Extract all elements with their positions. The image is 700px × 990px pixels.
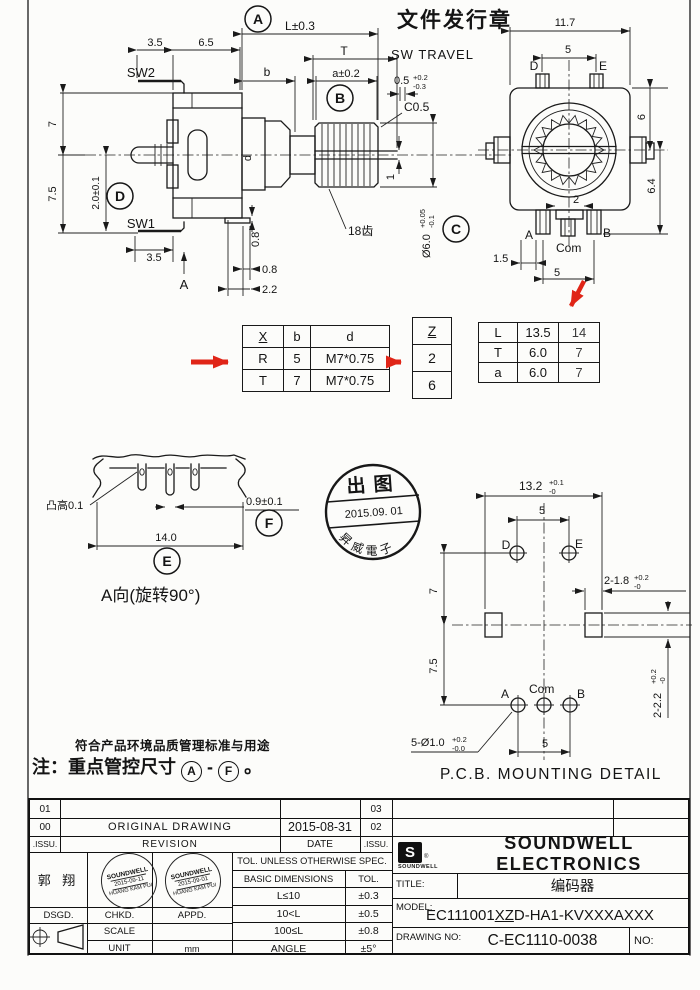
- dim-T: T: [340, 44, 348, 58]
- dim-09: 0.9±0.1: [246, 496, 283, 508]
- dim-08-horiz: 0.8: [262, 264, 277, 276]
- spec-cell: T: [243, 370, 284, 392]
- dim-b: b: [264, 65, 271, 79]
- title-block: 01 03 00 ORIGINAL DRAWING 2015-08-31 02 …: [28, 798, 690, 955]
- no-label: NO:: [634, 931, 684, 951]
- rev-date: 2015-08-31: [280, 818, 360, 836]
- terminal-d-label: D: [530, 59, 539, 73]
- terminal-com-label: Com: [556, 241, 581, 255]
- callout-e: E: [162, 553, 171, 569]
- pcb-slot-w-sub: -0: [634, 582, 641, 591]
- compliance-note: 符合产品环境品质管理标准与用途: [75, 735, 270, 754]
- bump-height-label: 凸高0.1: [46, 498, 83, 512]
- scale-label: SCALE: [87, 923, 152, 940]
- tol-row-dim: 100≤L: [232, 922, 345, 940]
- teeth-label: 18齿: [348, 224, 373, 238]
- pcb-dim-132: 13.2: [519, 479, 543, 493]
- pcb-hole-e-label: E: [575, 537, 583, 551]
- rev-desc: ORIGINAL DRAWING: [60, 818, 280, 836]
- stamp-title: 出图: [346, 471, 401, 498]
- drawing-sheet: 1 d L±0.3 T a±0.2 b 0.5 +0.2 -0.3 C0.5 S…: [0, 0, 700, 990]
- pcb-dim-132-sup: +0.1: [549, 478, 564, 487]
- rev-header-date: DATE: [280, 836, 360, 852]
- model-post: D-HA1-KVXXXAXXX: [514, 907, 654, 924]
- drawing-no-label: DRAWING NO:: [396, 930, 466, 944]
- role-appd: APPD.: [152, 907, 232, 923]
- dim-shaft-dia-sub: -0.1: [427, 215, 436, 228]
- sw-travel-label: SW TRAVEL: [391, 47, 474, 62]
- rev-issu-03: 03: [360, 800, 392, 818]
- dim-35-bot: 3.5: [146, 252, 161, 264]
- dim-5-top-front: 5: [565, 44, 571, 56]
- stamp-company: 昇威電子: [336, 530, 397, 558]
- callout-letters: A B C D E F: [115, 11, 461, 569]
- lta-cell: 7: [559, 363, 600, 383]
- terminal-a-label: A: [525, 228, 533, 242]
- pcb-dim-5-bot: 5: [542, 738, 548, 750]
- dim-75: 7.5: [47, 186, 59, 201]
- knurl-lines: [322, 124, 370, 186]
- dim-65: 6.5: [198, 37, 213, 49]
- sw2-label: SW2: [127, 65, 155, 80]
- title-label: TITLE:: [396, 876, 452, 892]
- pcb-hole-d-label: D: [502, 538, 511, 552]
- callout-c: C: [451, 221, 461, 237]
- dim-shaft-dia: Ø6.0: [421, 234, 433, 258]
- role-dsgd: DSGD.: [30, 907, 87, 923]
- lta-cell: 7: [559, 343, 600, 363]
- z-table: Z 2 6: [412, 317, 452, 399]
- model-value: EC111001XZD-HA1-KVXXXAXXX: [392, 904, 688, 926]
- logo-glyph: S: [398, 842, 422, 863]
- tol-col-tol: TOL.: [345, 870, 392, 887]
- tol-row-val: ±0.8: [345, 922, 392, 940]
- registered-mark: ®: [424, 854, 428, 860]
- terminal-b-label: B: [603, 226, 611, 240]
- callout-b: B: [335, 90, 345, 106]
- tol-header: TOL. UNLESS OTHERWISE SPEC.: [232, 852, 392, 870]
- drawing-no-value: C-EC1110-0038: [460, 929, 625, 953]
- tol-row-val: ±0.5: [345, 905, 392, 922]
- spec-cell: 7: [284, 370, 311, 392]
- lta-cell: 14: [559, 323, 600, 343]
- dim-2: 2: [573, 194, 579, 206]
- tol-row-dim: ANGLE: [232, 940, 345, 957]
- dim-64: 6.4: [646, 178, 658, 193]
- note-suffix: 。: [244, 757, 262, 777]
- dim-14: 14.0: [155, 532, 176, 544]
- lta-cell: T: [479, 343, 518, 363]
- pcb-dim-5-top: 5: [539, 505, 545, 517]
- logo-text: SOUNDWELL: [398, 864, 438, 870]
- a-direction-view: 凸高0.1 0.9±0.1 14.0 A向(旋转90°): [46, 455, 299, 605]
- dim-117: 11.7: [555, 17, 576, 29]
- rev-issu-00: 00: [30, 818, 60, 836]
- tol-row-dim: L≤10: [232, 887, 345, 905]
- dim-22: 2.2: [262, 284, 277, 296]
- spec-cell: M7*0.75: [311, 348, 390, 370]
- dim-slot-width: 1: [385, 174, 397, 180]
- front-view: D E A Com B 11.7 5 6 6.4 2 1.5 5: [478, 17, 668, 284]
- key-dimensions-note: 注：重点管控尺寸 A - F 。: [32, 753, 262, 782]
- callout-d: D: [115, 188, 125, 204]
- lta-table: L 13.5 14 T 6.0 7 a 6.0 7: [478, 322, 600, 383]
- callout-a: A: [253, 11, 263, 27]
- lta-cell: L: [479, 323, 518, 343]
- rev-issu-02: 02: [360, 818, 392, 836]
- rev-header-issu: .ISSU.: [30, 836, 60, 852]
- terminal-e-label: E: [599, 59, 607, 73]
- role-chkd: CHKD.: [87, 907, 152, 923]
- dim-shaft-dia-sup: +0.05: [418, 209, 427, 228]
- a-view-caption: A向(旋转90°): [101, 586, 200, 605]
- designer-name: 郭 翔: [30, 852, 87, 907]
- title-value: 编码器: [457, 873, 688, 898]
- pcb-hole-a-label: A: [501, 687, 509, 701]
- rev-header-revision: REVISION: [60, 836, 280, 852]
- tol-row-val: ±0.3: [345, 887, 392, 905]
- pcb-holes-dim: 5-Ø1.0: [411, 737, 445, 749]
- rev-header-issu2: .ISSU.: [360, 836, 392, 852]
- tol-row-val: ±5°: [345, 940, 392, 957]
- z-header: Z: [413, 318, 452, 345]
- dim-7: 7: [47, 121, 59, 127]
- approval-stamp-appd: SOUNDWELL 2015-09-01 HUANG KAM PUI: [160, 848, 226, 914]
- pcb-holes-dim-sup: +0.2: [452, 735, 467, 744]
- company-name: SOUNDWELL ELECTRONICS: [450, 838, 688, 870]
- pcb-slot-w-sup: +0.2: [634, 573, 649, 582]
- spec-cell: R: [243, 348, 284, 370]
- rev-issu-01: 01: [30, 800, 60, 818]
- dim-a: a±0.2: [332, 68, 359, 80]
- pcb-caption: P.C.B. MOUNTING DETAIL: [440, 766, 662, 783]
- pcb-slot-h-sub: -0: [658, 677, 667, 684]
- pcb-mounting-detail: D E A Com B 5 13.2 +0.1 -0 7 7.5 2-1.8 +…: [411, 478, 692, 783]
- side-view: 1 d L±0.3 T a±0.2 b 0.5 +0.2 -0.3 C0.5 S…: [47, 8, 512, 296]
- pcb-slot-h-sup: +0.2: [649, 669, 658, 684]
- document-release-stamp-text: 文件发行章: [397, 8, 512, 32]
- spec-header-d: d: [311, 326, 390, 348]
- note-dash: -: [207, 757, 213, 777]
- dim-d: d: [242, 155, 254, 161]
- dim-15: 1.5: [493, 253, 508, 265]
- lta-cell: 6.0: [518, 363, 559, 383]
- dim-08-vert: 0.8: [250, 232, 262, 247]
- callout-f: F: [265, 515, 274, 531]
- lta-cell: a: [479, 363, 518, 383]
- note-prefix: 注：重点管控尺寸: [32, 757, 176, 777]
- soundwell-logo-icon: S ® SOUNDWELL: [398, 842, 450, 872]
- pcb-dim-75: 7.5: [428, 658, 440, 673]
- pcb-slot-h: 2-2.2: [652, 693, 664, 718]
- dim-5-bot-front: 5: [554, 267, 560, 279]
- pcb-dim-7: 7: [428, 588, 440, 594]
- spec-header-b: b: [284, 326, 311, 348]
- note-callout-a: A: [181, 761, 202, 782]
- dim-20: 2.0±0.1: [91, 176, 102, 210]
- tol-col-dim: BASIC DIMENSIONS: [232, 870, 345, 887]
- view-a-label: A: [180, 277, 189, 292]
- model-pre: EC111001: [426, 907, 495, 924]
- pcb-slot-w: 2-1.8: [604, 575, 629, 587]
- spec-cell: M7*0.75: [311, 370, 390, 392]
- pcb-holes-dim-sub: -0.0: [452, 744, 465, 753]
- tol-row-dim: 10<L: [232, 905, 345, 922]
- release-stamp: 出图 2015.09. 01 昇威電子: [326, 465, 420, 559]
- dim-sw-travel: 0.5: [394, 75, 409, 87]
- lta-cell: 6.0: [518, 343, 559, 363]
- pcb-dim-132-sub: -0: [549, 487, 556, 496]
- red-arrow-lta-table: [571, 281, 584, 306]
- z-cell: 2: [413, 345, 452, 372]
- unit-label: UNIT: [87, 940, 152, 957]
- spec-cell: 5: [284, 348, 311, 370]
- spec-table: X b d R 5 M7*0.75 T 7 M7*0.75: [242, 325, 390, 392]
- spec-header-x: X: [243, 326, 284, 348]
- pcb-hole-com-label: Com: [529, 682, 554, 696]
- pcb-hole-b-label: B: [577, 687, 585, 701]
- dim-sw-travel-sub: -0.3: [413, 82, 426, 91]
- note-callout-f: F: [218, 761, 239, 782]
- model-variable: XZ: [495, 907, 514, 924]
- callout-circles: [107, 6, 469, 574]
- dim-sw-travel-sup: +0.2: [413, 73, 428, 82]
- svg-text:昇威電子: 昇威電子: [336, 530, 397, 558]
- lta-cell: 13.5: [518, 323, 559, 343]
- sw1-label: SW1: [127, 216, 155, 231]
- unit-value: mm: [152, 940, 232, 957]
- dim-35-top: 3.5: [147, 37, 162, 49]
- dim-chamfer: C0.5: [404, 100, 430, 114]
- dim-6: 6: [636, 114, 648, 120]
- dim-L: L±0.3: [285, 19, 315, 33]
- z-cell: 6: [413, 372, 452, 399]
- stamp-date: 2015.09. 01: [344, 505, 403, 521]
